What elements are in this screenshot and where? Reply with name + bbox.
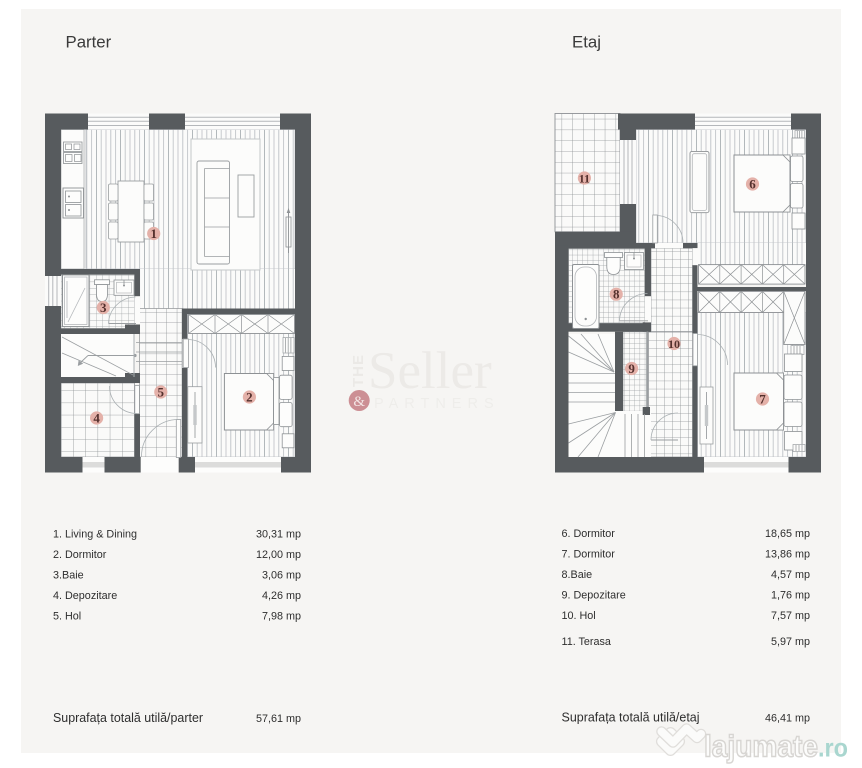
svg-text:46,41 mp: 46,41 mp [765, 713, 810, 725]
svg-text:57,61 mp: 57,61 mp [256, 713, 301, 725]
svg-text:7. Dormitor: 7. Dormitor [562, 549, 616, 561]
svg-text:3.Baie: 3.Baie [53, 570, 84, 582]
svg-text:11: 11 [579, 172, 590, 186]
svg-text:1. Living & Dining: 1. Living & Dining [53, 529, 137, 541]
svg-text:4,26 mp: 4,26 mp [262, 590, 301, 602]
svg-text:8: 8 [613, 287, 620, 302]
svg-text:5,97 mp: 5,97 mp [771, 636, 810, 648]
svg-text:lajumate: lajumate [704, 729, 818, 764]
svg-text:3,06 mp: 3,06 mp [262, 570, 301, 582]
svg-text:Suprafața totală utilă/parter: Suprafața totală utilă/parter [53, 710, 204, 725]
svg-text:4: 4 [93, 411, 100, 426]
svg-text:1: 1 [150, 226, 157, 241]
svg-text:4,57 mp: 4,57 mp [771, 569, 810, 581]
svg-text:9. Depozitare: 9. Depozitare [562, 590, 626, 602]
svg-text:5: 5 [158, 385, 165, 400]
svg-text:THE: THE [350, 354, 367, 387]
svg-text:1,76 mp: 1,76 mp [771, 590, 810, 602]
svg-text:30,31 mp: 30,31 mp [256, 529, 301, 541]
svg-text:2: 2 [246, 390, 253, 405]
svg-text:PARTNERS: PARTNERS [374, 396, 500, 412]
svg-text:Suprafața totală utilă/etaj: Suprafața totală utilă/etaj [562, 710, 700, 725]
svg-text:6. Dormitor: 6. Dormitor [562, 528, 616, 540]
svg-text:2. Dormitor: 2. Dormitor [53, 549, 107, 561]
svg-text:Etaj: Etaj [572, 33, 601, 52]
svg-text:7,57 mp: 7,57 mp [771, 610, 810, 622]
svg-text:7,98 mp: 7,98 mp [262, 611, 301, 623]
svg-text:9: 9 [628, 361, 635, 376]
svg-text:&: & [353, 394, 365, 410]
svg-text:7: 7 [759, 392, 766, 407]
svg-text:12,00 mp: 12,00 mp [256, 549, 301, 561]
svg-text:8.Baie: 8.Baie [562, 569, 593, 581]
svg-text:Seller: Seller [368, 342, 492, 400]
svg-text:11. Terasa: 11. Terasa [562, 636, 611, 648]
svg-text:4. Depozitare: 4. Depozitare [53, 590, 117, 602]
svg-text:Parter: Parter [66, 33, 112, 52]
svg-text:5. Hol: 5. Hol [53, 611, 81, 623]
svg-text:3: 3 [100, 300, 107, 315]
svg-text:.ro: .ro [818, 733, 848, 763]
svg-text:18,65 mp: 18,65 mp [765, 528, 810, 540]
svg-text:10: 10 [668, 337, 680, 351]
svg-text:10. Hol: 10. Hol [562, 610, 596, 622]
svg-text:6: 6 [749, 177, 756, 192]
svg-text:13,86 mp: 13,86 mp [765, 549, 810, 561]
